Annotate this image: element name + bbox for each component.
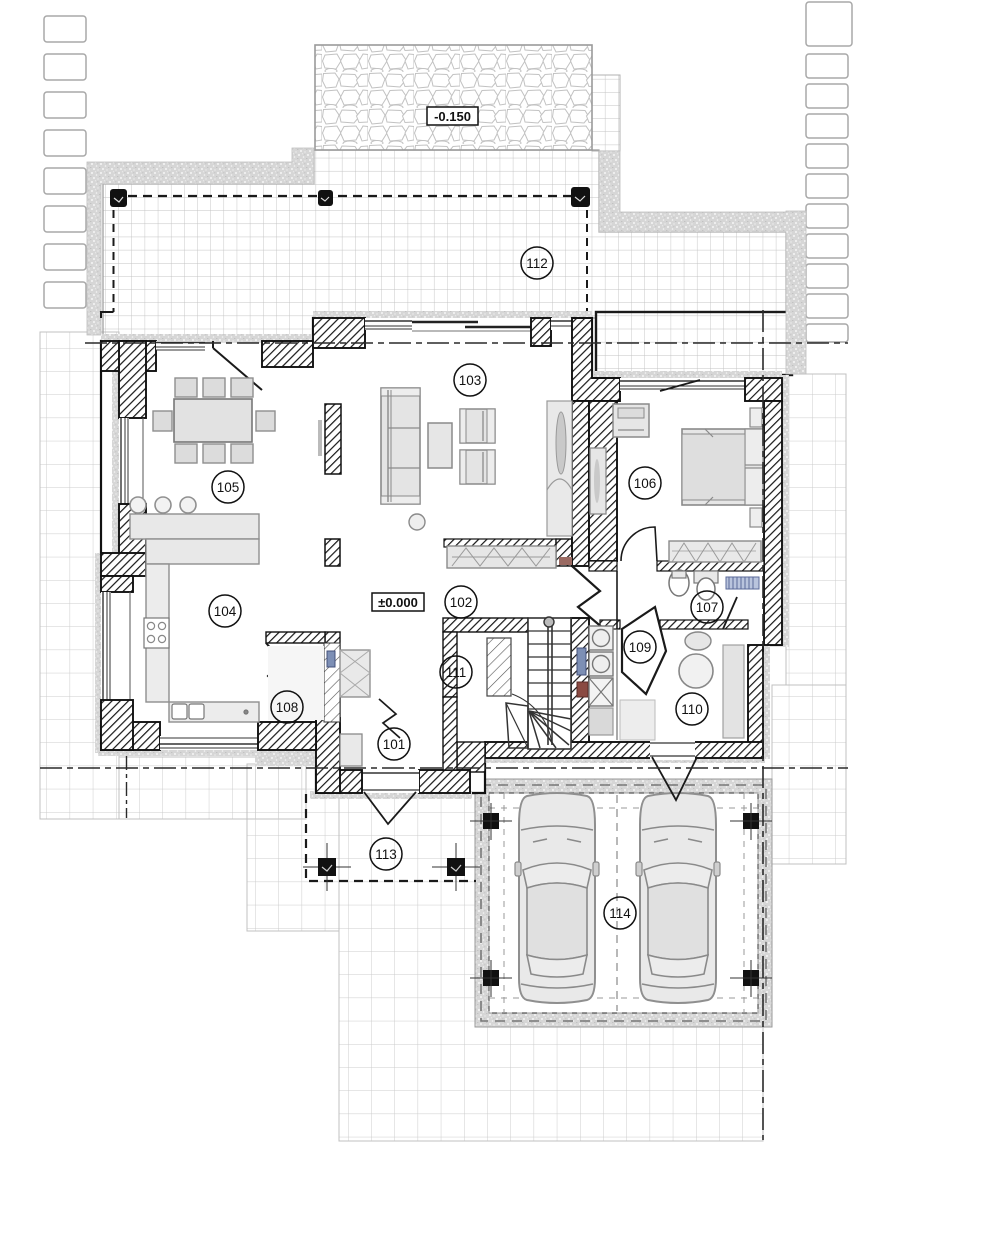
svg-text:105: 105 xyxy=(217,480,240,495)
svg-text:113: 113 xyxy=(375,847,397,862)
svg-text:103: 103 xyxy=(459,373,482,388)
svg-text:111: 111 xyxy=(446,665,467,680)
svg-text:110: 110 xyxy=(681,702,703,717)
svg-text:109: 109 xyxy=(629,640,652,655)
svg-text:102: 102 xyxy=(450,595,473,610)
svg-text:114: 114 xyxy=(609,906,631,921)
svg-text:104: 104 xyxy=(214,604,237,619)
svg-text:107: 107 xyxy=(696,600,719,615)
svg-text:106: 106 xyxy=(634,476,657,491)
svg-text:101: 101 xyxy=(383,737,406,752)
svg-text:112: 112 xyxy=(526,256,548,271)
svg-text:108: 108 xyxy=(276,700,299,715)
svg-text:±0.000: ±0.000 xyxy=(378,595,418,610)
svg-text:-0.150: -0.150 xyxy=(434,109,471,124)
